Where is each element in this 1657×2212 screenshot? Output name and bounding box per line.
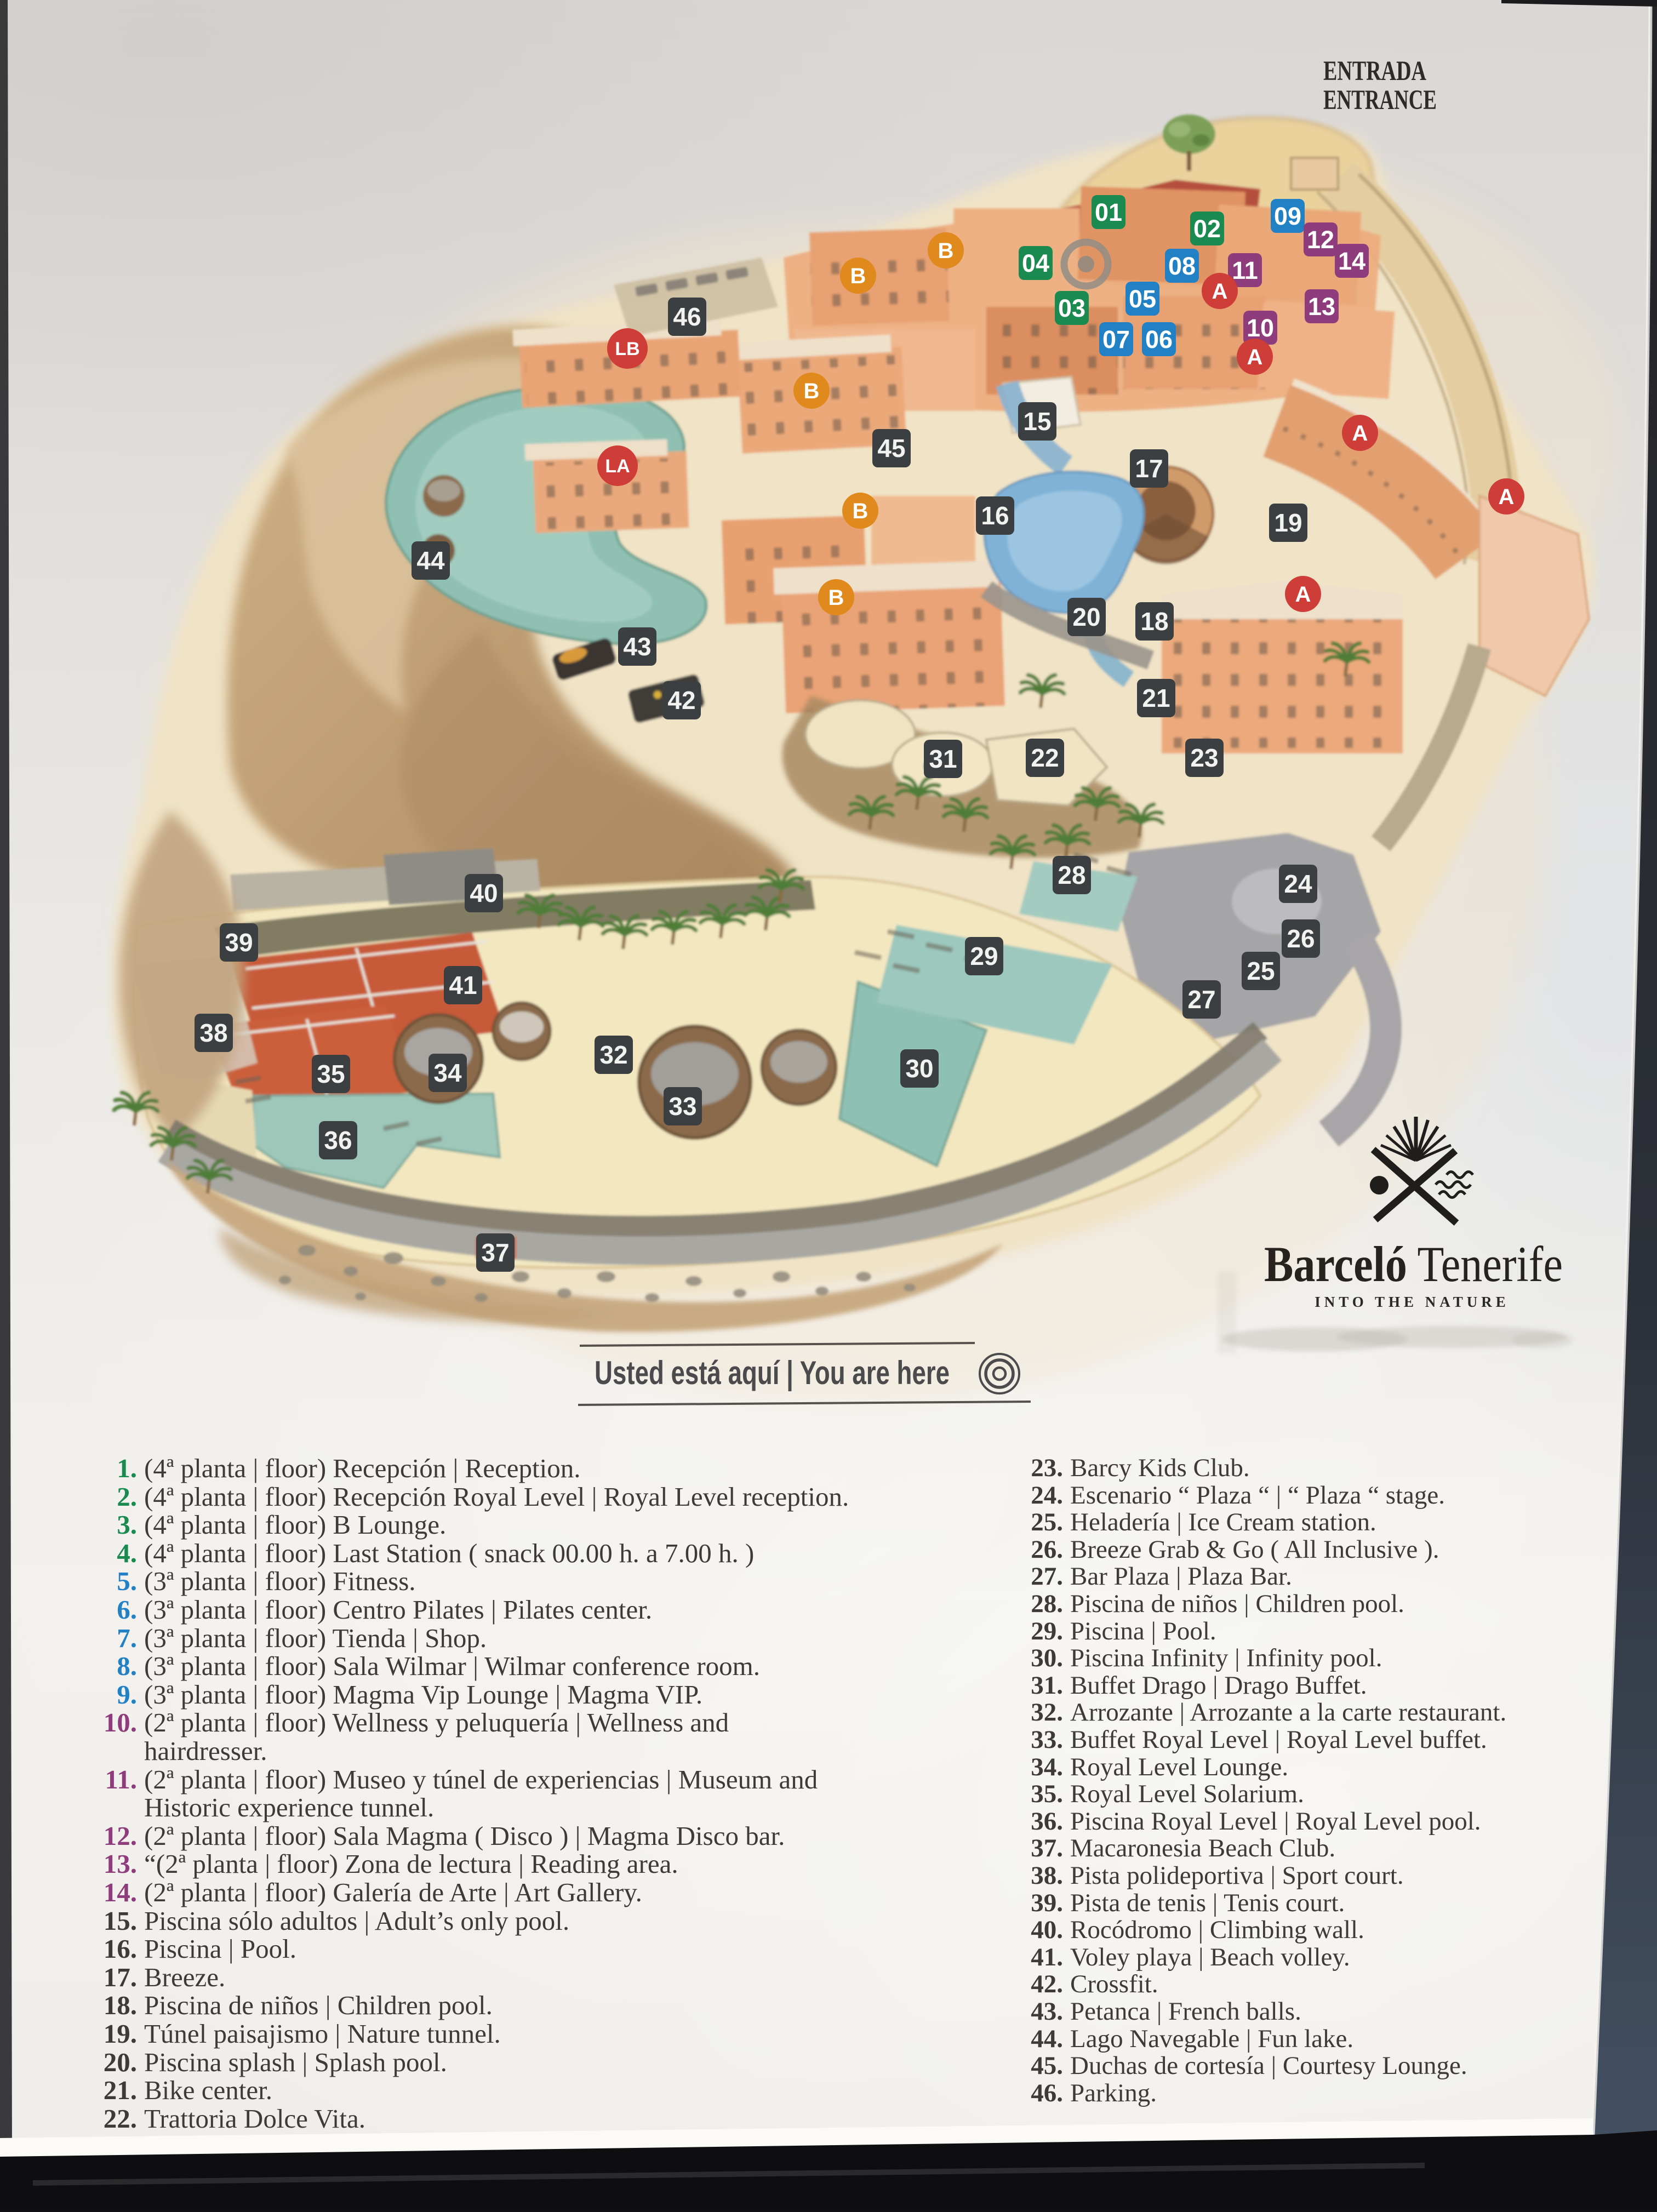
svg-text:11: 11: [1232, 256, 1258, 284]
svg-text:31: 31: [929, 745, 957, 773]
svg-text:45: 45: [877, 434, 905, 462]
svg-text:01: 01: [1095, 198, 1122, 226]
svg-text:Usted está aquí | You are here: Usted está aquí | You are here: [595, 1354, 950, 1392]
svg-text:B: B: [804, 379, 820, 403]
svg-text:LA: LA: [605, 456, 630, 477]
svg-text:27: 27: [1187, 985, 1215, 1014]
svg-text:22: 22: [1031, 744, 1059, 772]
svg-text:30: 30: [905, 1054, 933, 1083]
svg-text:42: 42: [667, 686, 695, 715]
svg-text:43: 43: [623, 632, 651, 661]
svg-text:06: 06: [1145, 325, 1173, 353]
svg-text:B: B: [850, 264, 866, 288]
svg-text:20: 20: [1072, 603, 1100, 631]
svg-text:08: 08: [1168, 252, 1196, 280]
svg-text:05: 05: [1129, 285, 1156, 313]
svg-text:ENTRANCE: ENTRANCE: [1323, 85, 1437, 116]
svg-text:34: 34: [433, 1059, 462, 1087]
svg-text:25: 25: [1247, 957, 1275, 985]
svg-text:A: A: [1295, 582, 1311, 607]
svg-text:02: 02: [1193, 215, 1221, 243]
svg-text:18: 18: [1140, 607, 1168, 636]
svg-text:ENTRADA: ENTRADA: [1323, 56, 1426, 87]
svg-text:14: 14: [1338, 247, 1365, 275]
svg-text:19: 19: [1274, 508, 1302, 537]
svg-text:36: 36: [324, 1126, 352, 1154]
svg-text:46: 46: [673, 302, 701, 331]
svg-text:A: A: [1352, 421, 1368, 445]
svg-text:21: 21: [1142, 684, 1170, 712]
svg-text:38: 38: [199, 1019, 227, 1047]
svg-text:28: 28: [1058, 861, 1085, 889]
svg-text:LB: LB: [615, 339, 639, 359]
svg-text:17: 17: [1135, 454, 1163, 483]
svg-text:26: 26: [1287, 924, 1315, 953]
svg-text:04: 04: [1022, 249, 1049, 277]
svg-text:33: 33: [668, 1092, 696, 1121]
svg-text:09: 09: [1274, 202, 1301, 230]
svg-text:INTO THE NATURE: INTO THE NATURE: [1315, 1294, 1510, 1310]
svg-text:29: 29: [970, 942, 998, 970]
svg-text:07: 07: [1102, 325, 1130, 353]
svg-text:B: B: [938, 239, 954, 263]
svg-text:A: A: [1247, 345, 1263, 369]
svg-text:39: 39: [225, 928, 253, 957]
svg-text:16: 16: [981, 501, 1009, 530]
svg-text:03: 03: [1058, 294, 1085, 322]
svg-text:44: 44: [416, 546, 445, 575]
svg-text:35: 35: [317, 1060, 345, 1088]
svg-text:40: 40: [470, 879, 498, 907]
svg-text:37: 37: [481, 1238, 509, 1267]
svg-text:Barceló Tenerife: Barceló Tenerife: [1264, 1236, 1563, 1292]
svg-text:32: 32: [599, 1041, 627, 1069]
svg-text:12: 12: [1307, 226, 1334, 254]
svg-text:B: B: [853, 499, 869, 523]
svg-text:A: A: [1499, 485, 1515, 509]
svg-text:10: 10: [1247, 314, 1274, 342]
svg-text:13: 13: [1308, 293, 1335, 321]
svg-text:A: A: [1212, 279, 1228, 304]
svg-text:41: 41: [449, 971, 477, 999]
svg-text:15: 15: [1023, 407, 1051, 436]
svg-text:23: 23: [1190, 744, 1218, 772]
svg-text:24: 24: [1284, 870, 1312, 898]
svg-text:B: B: [828, 586, 844, 610]
